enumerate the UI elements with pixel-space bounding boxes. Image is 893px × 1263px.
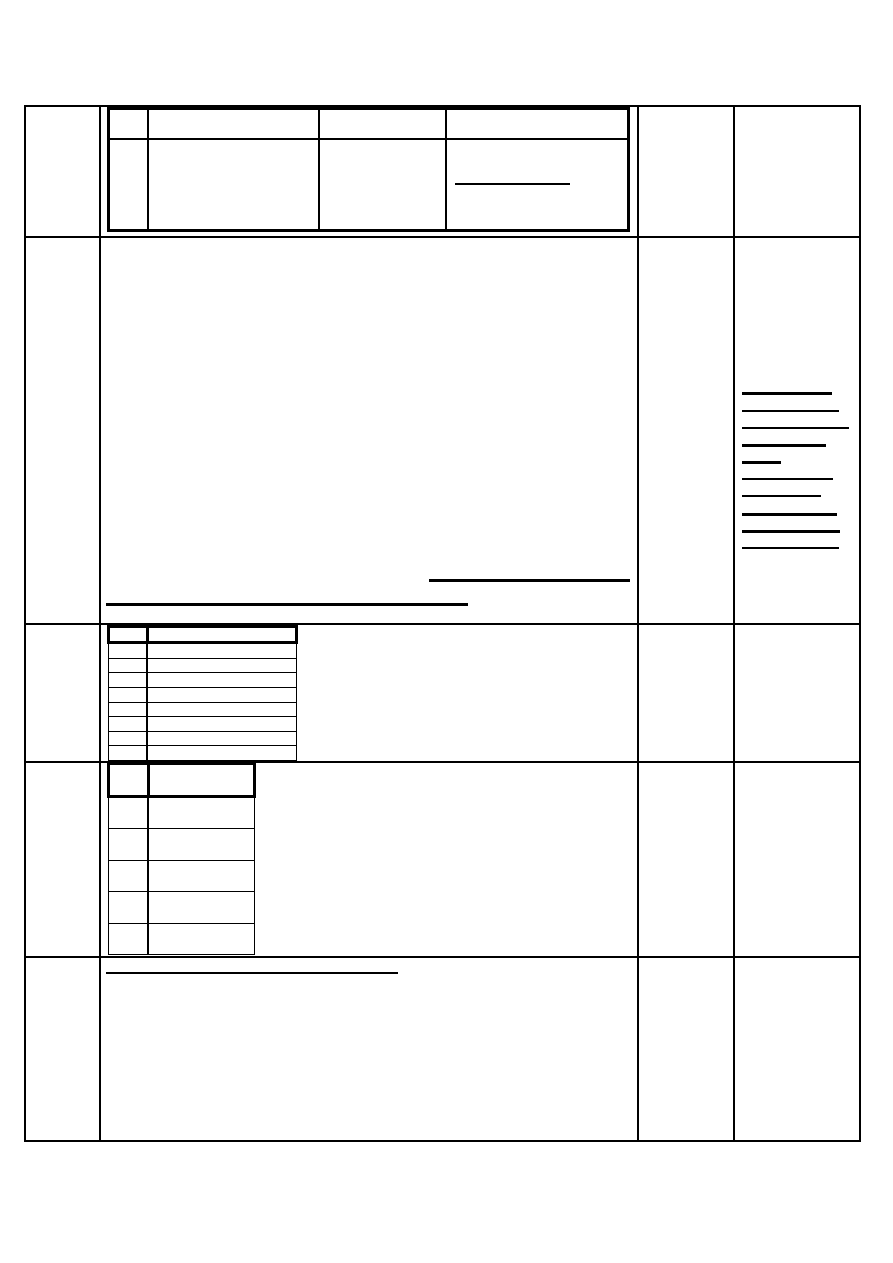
blank-row [109, 673, 296, 688]
header-table-divider-3 [445, 110, 447, 229]
grade-table-column-divider [147, 798, 149, 954]
header-table [107, 107, 630, 232]
document-page [0, 0, 893, 1263]
form-grid [24, 105, 861, 1142]
list-table-body [108, 644, 297, 761]
grade-table-body [108, 798, 255, 955]
blank-row [109, 688, 296, 703]
blank-row [109, 829, 254, 860]
grade-table-header-divider [147, 765, 150, 795]
blank-line [742, 547, 839, 549]
header-table-divider-1 [147, 110, 149, 229]
grade-table-header [107, 762, 256, 798]
blank-line [106, 603, 468, 606]
blank-line [742, 495, 821, 497]
blank-line [742, 427, 849, 429]
blank-row [109, 798, 254, 829]
list-table-header [107, 625, 298, 644]
list-table-column-divider [146, 644, 148, 760]
blank-line [106, 972, 398, 974]
blank-line [742, 444, 826, 447]
header-table-divider-2 [318, 110, 320, 229]
list-table-header-divider [146, 628, 149, 641]
blank-row [109, 732, 296, 747]
blank-line [429, 579, 630, 582]
blank-row [109, 644, 296, 659]
blank-line [455, 183, 570, 185]
grid-divider-horizontal-1 [26, 236, 859, 238]
blank-line [742, 410, 839, 412]
blank-line [742, 461, 781, 464]
blank-row [109, 659, 296, 674]
grid-divider-horizontal-4 [26, 956, 859, 958]
header-table-blank-field [110, 110, 627, 229]
blank-row [109, 746, 296, 760]
blank-row [109, 924, 254, 954]
blank-row [109, 892, 254, 923]
blank-row [109, 717, 296, 732]
blank-line [742, 530, 840, 533]
blank-line [742, 478, 833, 480]
header-table-row-divider [110, 138, 627, 140]
blank-row [109, 703, 296, 718]
blank-row [109, 861, 254, 892]
blank-line [742, 513, 837, 516]
blank-line [742, 392, 832, 395]
